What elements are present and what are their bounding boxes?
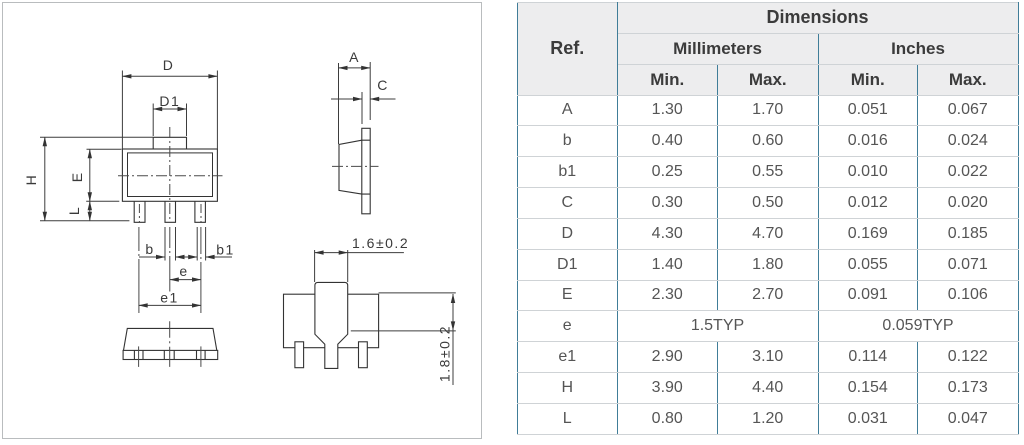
svg-text:A: A [349, 49, 360, 65]
svg-text:L: L [66, 206, 82, 215]
svg-text:1.6±0.2: 1.6±0.2 [352, 235, 409, 251]
svg-text:b1: b1 [216, 242, 235, 258]
svg-text:C: C [377, 77, 389, 93]
svg-text:H: H [23, 174, 39, 186]
svg-text:b: b [145, 241, 154, 257]
svg-text:D1: D1 [159, 93, 180, 109]
svg-text:1.8±0.2: 1.8±0.2 [437, 325, 453, 382]
svg-text:D: D [163, 57, 175, 73]
svg-text:E: E [69, 171, 85, 182]
svg-text:e1: e1 [160, 290, 179, 306]
svg-text:e: e [179, 263, 188, 279]
